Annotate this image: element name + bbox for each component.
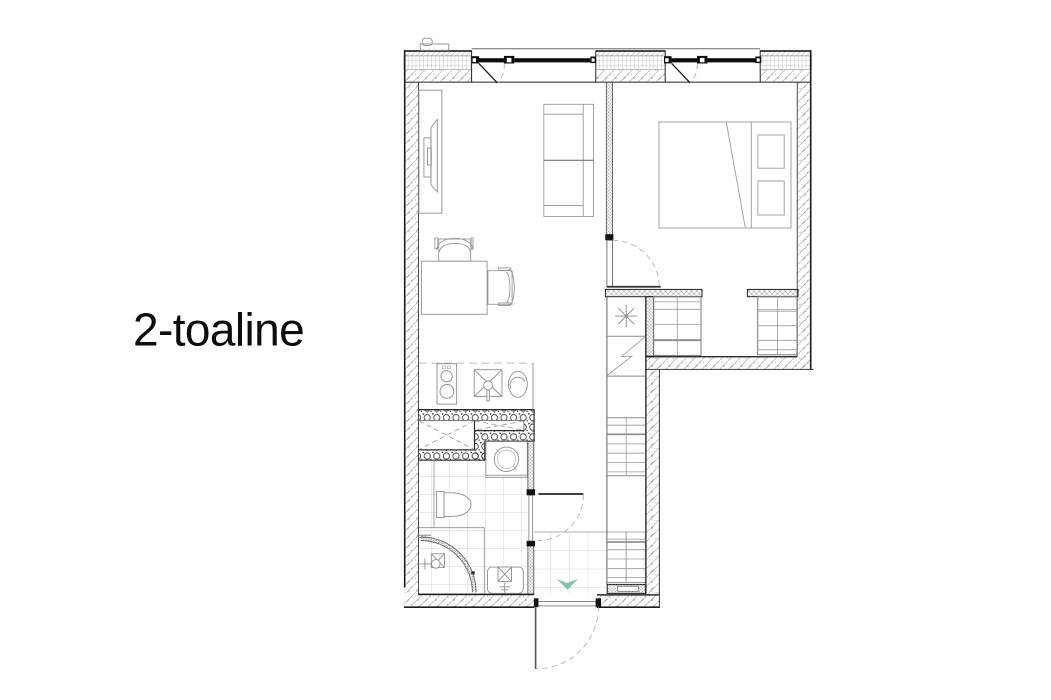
svg-text:2-toaline: 2-toaline <box>133 304 304 356</box>
